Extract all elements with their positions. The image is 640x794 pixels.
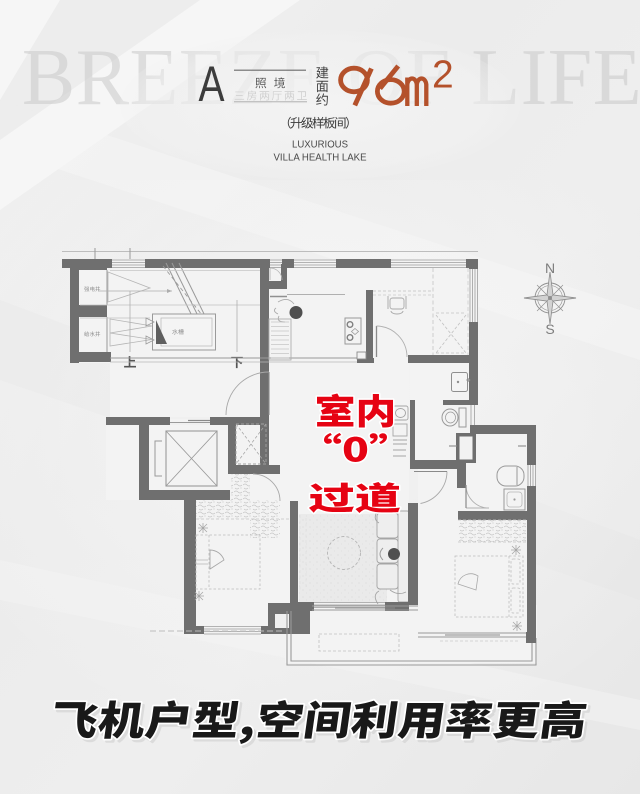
svg-text:A: A [198,55,224,112]
svg-text:VILLA HEALTH LAKE: VILLA HEALTH LAKE [274,152,367,164]
svg-text:2: 2 [432,54,454,97]
svg-text:S: S [545,321,554,337]
svg-text:N: N [545,260,555,276]
svg-text:LUXURIOUS: LUXURIOUS [292,140,348,151]
